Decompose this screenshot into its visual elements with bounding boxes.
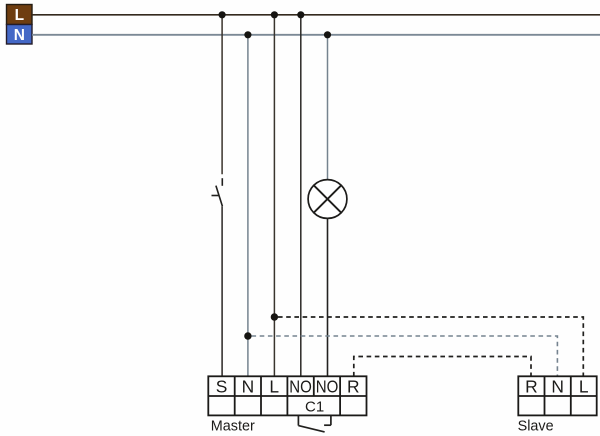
svg-text:L: L bbox=[269, 376, 279, 396]
svg-text:N: N bbox=[242, 376, 255, 396]
svg-text:R: R bbox=[347, 376, 360, 396]
svg-text:R: R bbox=[525, 376, 538, 396]
svg-text:C1: C1 bbox=[305, 399, 324, 416]
svg-text:Master: Master bbox=[211, 419, 255, 435]
svg-text:N: N bbox=[551, 376, 564, 396]
svg-text:Slave: Slave bbox=[518, 419, 554, 435]
svg-text:L: L bbox=[15, 7, 24, 24]
svg-text:N: N bbox=[14, 27, 25, 44]
svg-text:NO: NO bbox=[316, 376, 339, 396]
svg-text:S: S bbox=[216, 376, 228, 396]
svg-text:NO: NO bbox=[289, 376, 312, 396]
svg-text:L: L bbox=[579, 376, 589, 396]
